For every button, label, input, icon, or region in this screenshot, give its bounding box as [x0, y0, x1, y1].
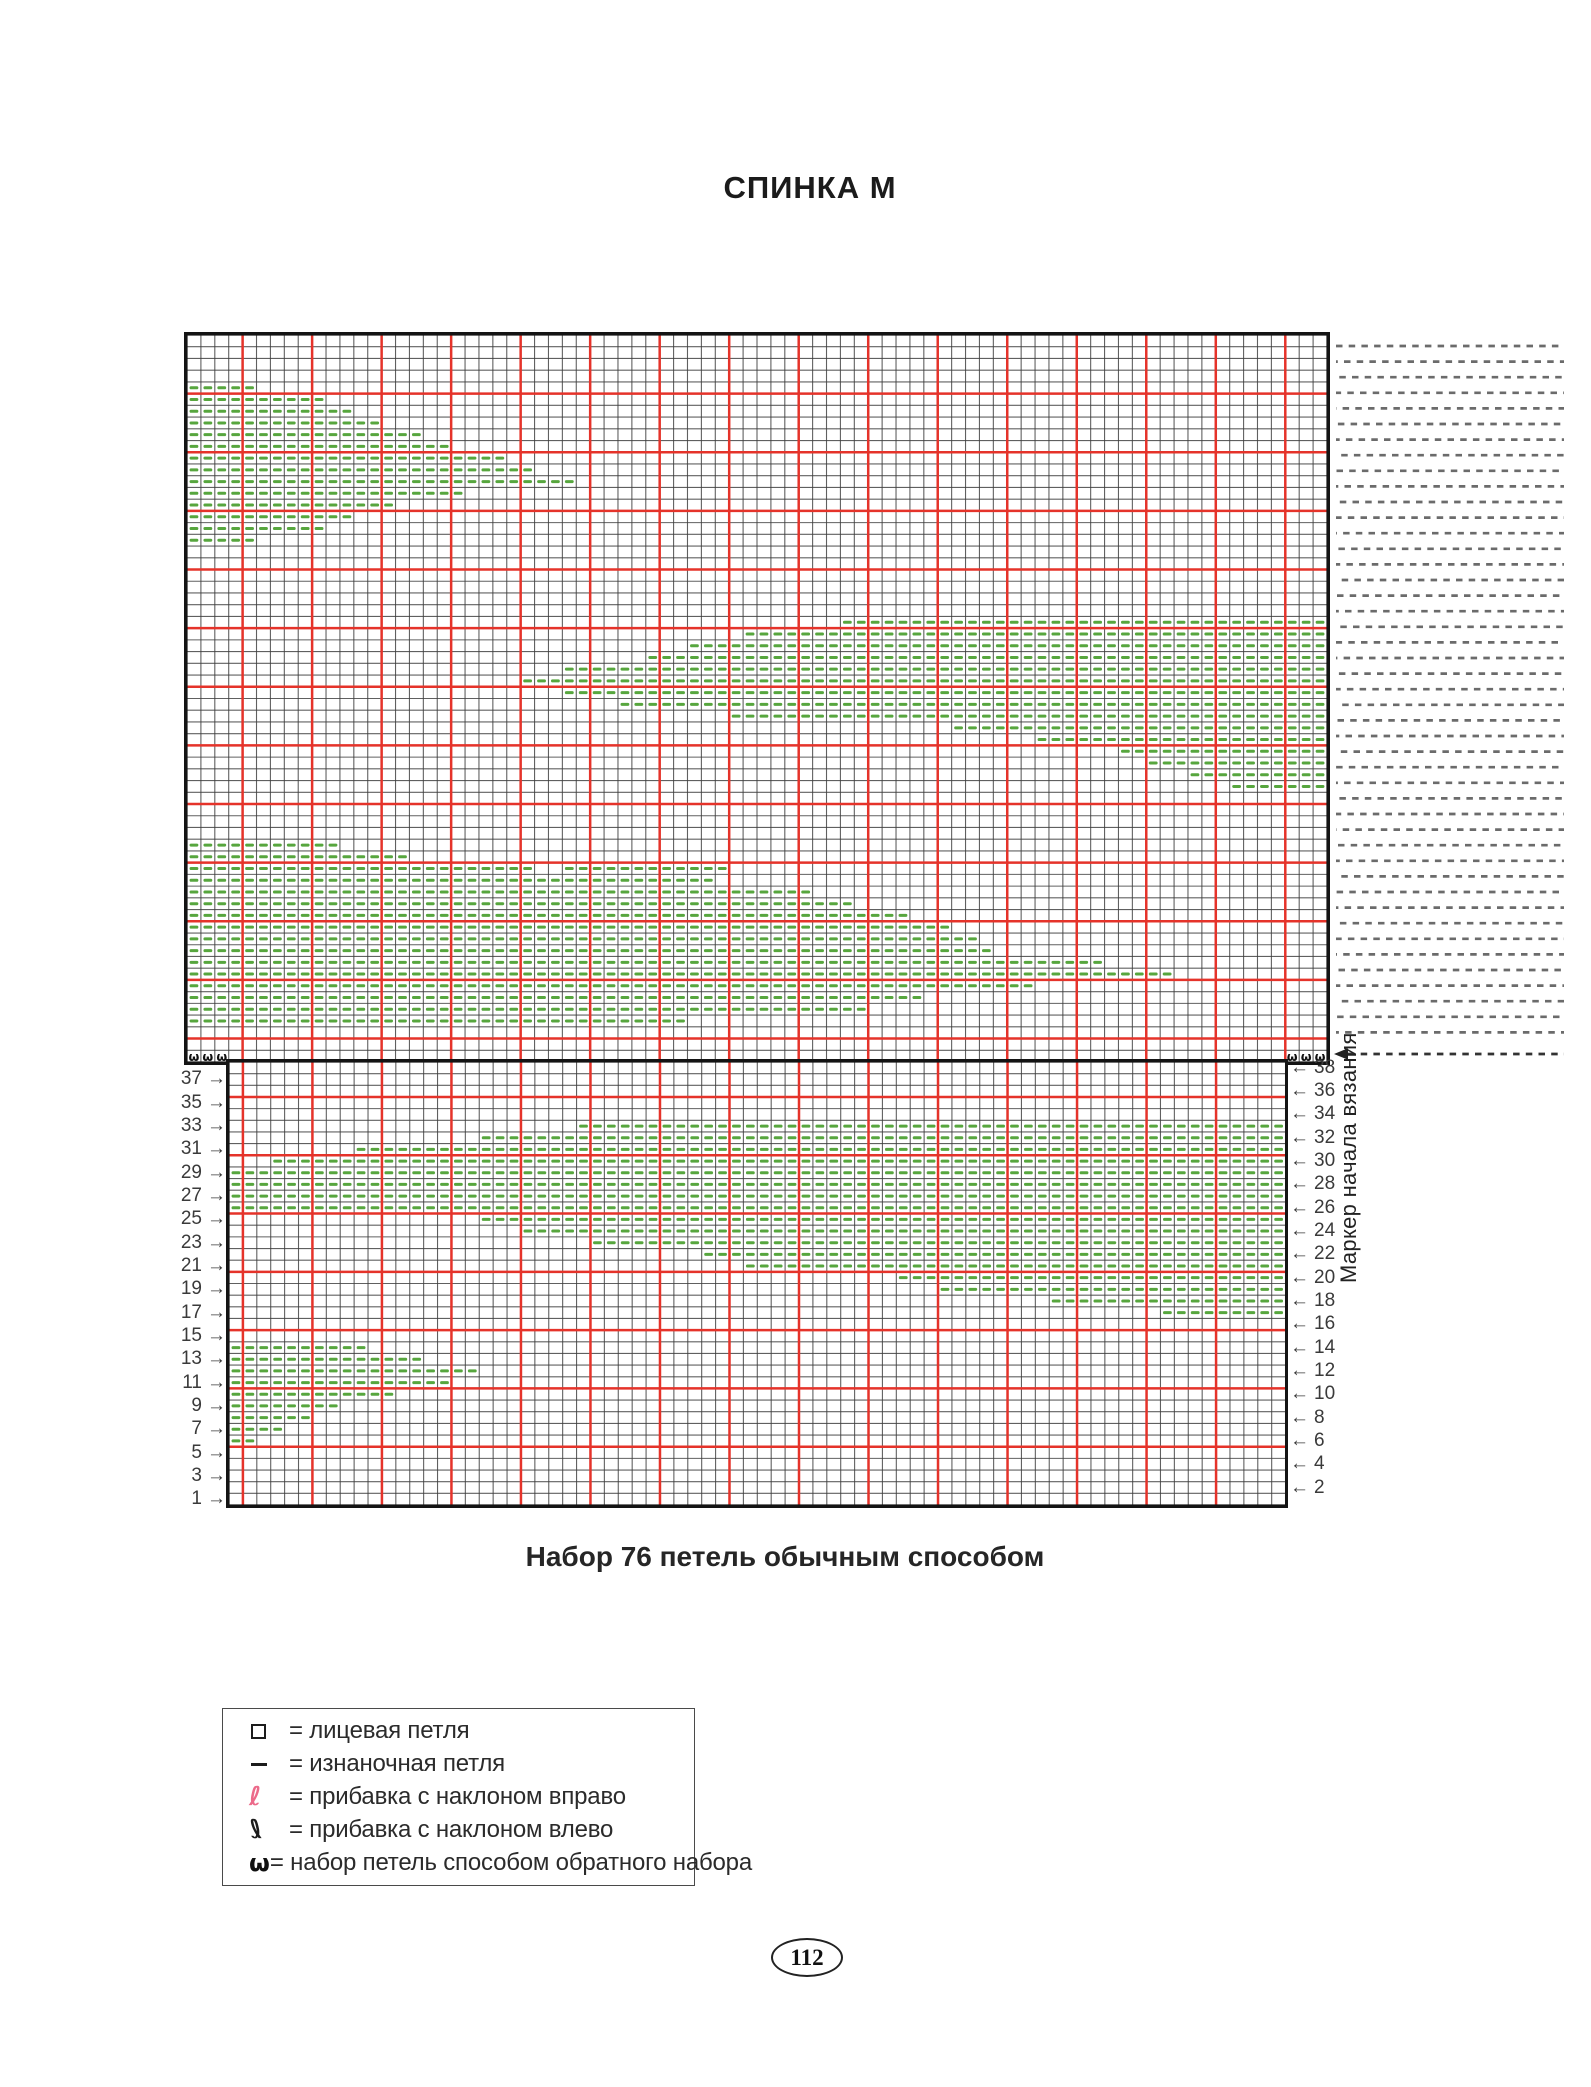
legend-item-increase-right: ℓ = прибавка с наклоном вправо: [249, 1784, 694, 1810]
row-number-right-4: ←4: [1290, 1453, 1376, 1475]
arrow-right-icon: →: [207, 1232, 226, 1254]
row-number-left-13: 13→: [140, 1348, 226, 1370]
legend-label: = прибавка с наклоном влево: [289, 1816, 613, 1844]
arrow-right-icon: →: [207, 1255, 226, 1277]
row-number-left-25: 25→: [140, 1208, 226, 1230]
arrow-left-icon: ←: [1290, 1477, 1309, 1499]
row-number-left-9: 9→: [140, 1395, 226, 1417]
arrow-right-icon: →: [207, 1185, 226, 1207]
page-number-badge: 112: [771, 1938, 843, 1977]
row-number-left-23: 23→: [140, 1232, 226, 1254]
legend-box: = лицевая петля = изнаночная петля ℓ = п…: [222, 1708, 695, 1886]
legend-label: = изнаночная петля: [289, 1750, 505, 1778]
row-number-left-21: 21→: [140, 1255, 226, 1277]
page-title: СПИНКА М: [610, 170, 1010, 206]
arrow-left-icon: ←: [1290, 1220, 1309, 1242]
row-number-left-17: 17→: [140, 1302, 226, 1324]
row-number-right-24: ←24: [1290, 1220, 1376, 1242]
arrow-left-icon: ←: [1290, 1383, 1309, 1405]
arrow-left-icon: ←: [1290, 1127, 1309, 1149]
arrow-left-icon: ←: [1290, 1313, 1309, 1335]
arrow-left-icon: ←: [1290, 1290, 1309, 1312]
book-page: СПИНКА М ωωωωωω Маркер начала вязания На…: [0, 0, 1591, 2087]
row-number-right-22: ←22: [1290, 1243, 1376, 1265]
page-number: 112: [790, 1945, 823, 1971]
arrow-right-icon: →: [207, 1068, 226, 1090]
row-number-left-3: 3→: [140, 1465, 226, 1487]
arrow-right-icon: →: [207, 1302, 226, 1324]
arrow-right-icon: →: [207, 1138, 226, 1160]
arrow-right-icon: →: [207, 1372, 226, 1394]
arrow-right-icon: →: [207, 1395, 226, 1417]
arrow-right-icon: →: [207, 1278, 226, 1300]
arrow-left-icon: ←: [1290, 1103, 1309, 1125]
row-number-right-32: ←32: [1290, 1127, 1376, 1149]
arrow-right-icon: →: [207, 1325, 226, 1347]
legend-item-knit: = лицевая петля: [249, 1718, 694, 1744]
arrow-left-icon: ←: [1290, 1173, 1309, 1195]
arrow-right-icon: →: [207, 1092, 226, 1114]
row-number-left-19: 19→: [140, 1278, 226, 1300]
arrow-right-icon: →: [207, 1208, 226, 1230]
arrow-right-icon: →: [207, 1418, 226, 1440]
knitting-chart-lower: [226, 1059, 1289, 1513]
arrow-left-icon: ←: [1290, 1243, 1309, 1265]
row-number-left-31: 31→: [140, 1138, 226, 1160]
row-number-right-30: ←30: [1290, 1150, 1376, 1172]
row-number-right-36: ←36: [1290, 1080, 1376, 1102]
row-number-left-5: 5→: [140, 1442, 226, 1464]
continue-pattern-hatch-area: [1334, 340, 1564, 1066]
backward-loop-cast-on-icon: ω: [249, 1851, 270, 1875]
row-number-right-18: ←18: [1290, 1290, 1376, 1312]
arrow-right-icon: →: [207, 1348, 226, 1370]
row-number-right-20: ←20: [1290, 1267, 1376, 1289]
arrow-right-icon: →: [207, 1162, 226, 1184]
row-number-right-34: ←34: [1290, 1103, 1376, 1125]
legend-item-purl: = изнаночная петля: [249, 1751, 694, 1777]
arrow-left-icon: ←: [1290, 1453, 1309, 1475]
knit-stitch-icon: [249, 1724, 289, 1739]
increase-left-icon: ℓ: [249, 1818, 289, 1842]
arrow-left-icon: ←: [1290, 1360, 1309, 1382]
row-number-right-6: ←6: [1290, 1430, 1376, 1452]
row-number-left-11: 11→: [140, 1372, 226, 1394]
row-number-left-29: 29→: [140, 1162, 226, 1184]
arrow-left-icon: ←: [1290, 1430, 1309, 1452]
knitting-chart-upper: ωωωωωω: [184, 332, 1330, 1070]
row-number-left-27: 27→: [140, 1185, 226, 1207]
row-number-left-1: 1→: [140, 1488, 226, 1510]
arrow-left-icon: ←: [1290, 1197, 1309, 1219]
row-number-left-15: 15→: [140, 1325, 226, 1347]
arrow-left-icon: ←: [1290, 1080, 1309, 1102]
increase-right-icon: ℓ: [249, 1785, 289, 1809]
arrow-left-icon: ←: [1290, 1150, 1309, 1172]
row-number-left-7: 7→: [140, 1418, 226, 1440]
arrow-right-icon: →: [207, 1488, 226, 1510]
arrow-right-icon: →: [207, 1442, 226, 1464]
row-number-right-14: ←14: [1290, 1337, 1376, 1359]
row-number-right-16: ←16: [1290, 1313, 1376, 1335]
legend-label: = прибавка с наклоном вправо: [289, 1783, 626, 1811]
legend-label: = набор петель способом обратного набора: [270, 1849, 752, 1877]
row-number-right-38: ←38: [1290, 1057, 1376, 1079]
row-number-right-12: ←12: [1290, 1360, 1376, 1382]
arrow-left-icon: ←: [1290, 1057, 1309, 1079]
arrow-left-icon: ←: [1290, 1267, 1309, 1289]
row-number-left-33: 33→: [140, 1115, 226, 1137]
row-number-right-10: ←10: [1290, 1383, 1376, 1405]
arrow-right-icon: →: [207, 1465, 226, 1487]
cast-on-caption: Набор 76 петель обычным способом: [485, 1541, 1085, 1573]
legend-item-increase-left: ℓ = прибавка с наклоном влево: [249, 1817, 694, 1843]
purl-stitch-icon: [249, 1763, 289, 1766]
arrow-right-icon: →: [207, 1115, 226, 1137]
row-number-right-26: ←26: [1290, 1197, 1376, 1219]
arrow-left-icon: ←: [1290, 1337, 1309, 1359]
legend-item-backward-loop: ω = набор петель способом обратного набо…: [249, 1850, 694, 1876]
row-number-right-28: ←28: [1290, 1173, 1376, 1195]
row-number-left-37: 37→: [140, 1068, 226, 1090]
legend-label: = лицевая петля: [289, 1717, 469, 1745]
arrow-left-icon: ←: [1290, 1407, 1309, 1429]
row-number-right-2: ←2: [1290, 1477, 1376, 1499]
row-number-left-35: 35→: [140, 1092, 226, 1114]
row-number-right-8: ←8: [1290, 1407, 1376, 1429]
